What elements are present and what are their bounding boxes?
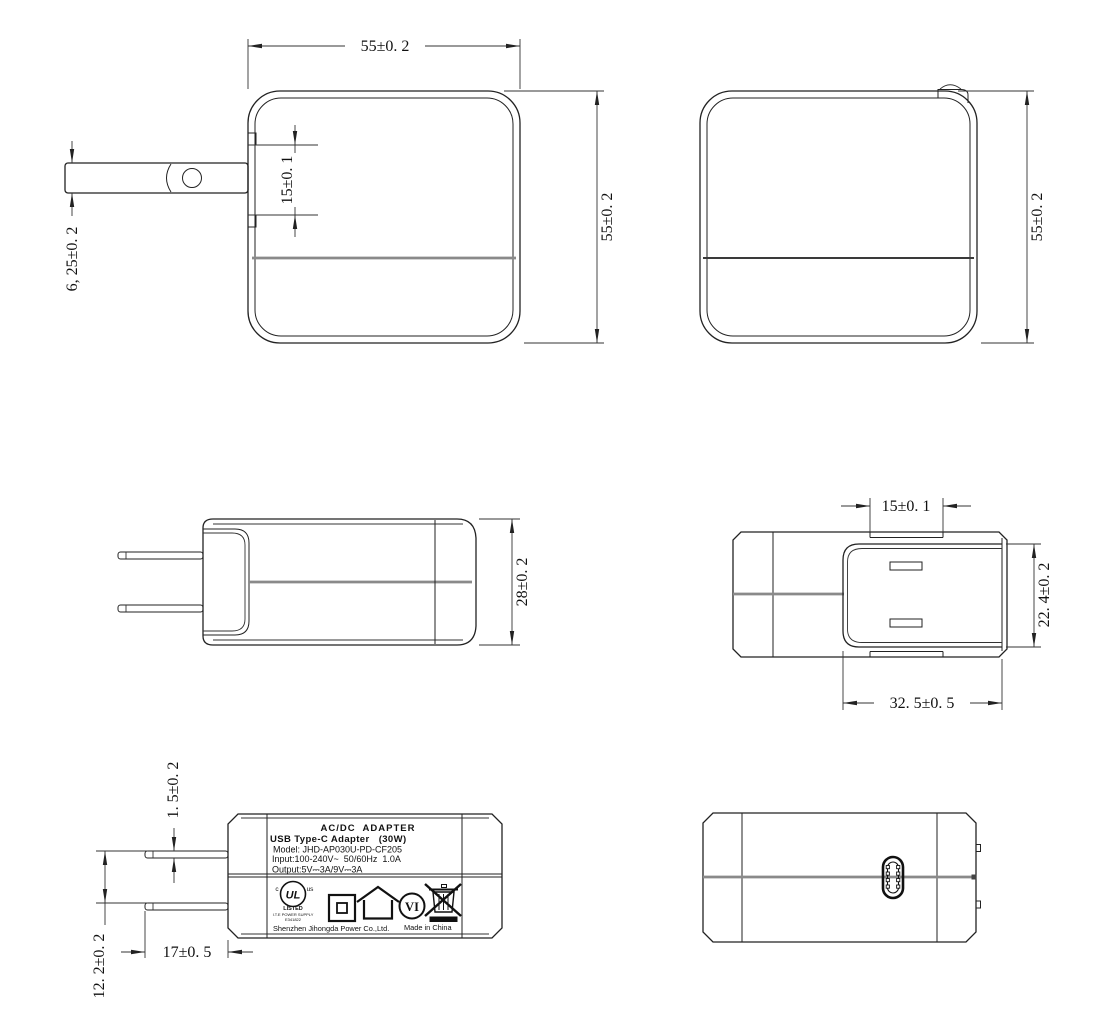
back-tab-arc: [940, 85, 961, 89]
prong-length-text: 17±0. 5: [163, 944, 212, 961]
label-input: Input:100-240V~ 50/60Hz 1.0A: [272, 854, 401, 864]
prong-hole: [183, 169, 202, 188]
indoor-use-icon: [357, 887, 399, 919]
prong-thickness-dimension: 1. 5±0. 2: [165, 762, 182, 883]
front-width-text: 55±0. 2: [361, 38, 410, 55]
ul-us-text: us: [307, 886, 315, 893]
side-notch-top: [976, 845, 981, 852]
front-view: 55±0. 2 55±0. 2 15±0. 1 6, 25±0. 2: [64, 38, 616, 343]
side-thickness-text: 28±0. 2: [514, 558, 531, 607]
top-recess-width-text: 32. 5±0. 5: [890, 695, 955, 712]
label-output: Output:5V⎓3A/9V⎓3A: [272, 865, 362, 875]
label-prong-bottom: [145, 903, 228, 910]
plug-slot-dimension: 15±0. 1: [279, 125, 296, 237]
label-prong-top: [145, 851, 228, 858]
front-body-inner-line: [255, 98, 513, 336]
bottom-view: [703, 813, 981, 942]
weee-bar: [430, 917, 458, 923]
top-recess-width-dimension: 32. 5±0. 5: [843, 651, 1002, 712]
ul-listed-icon: UL c us LISTED I.T.E POWER SUPPLY E34182…: [273, 882, 315, 923]
front-height-dimension: 55±0. 2: [504, 91, 616, 343]
ul-c-text: c: [275, 886, 279, 893]
plug-slot-text: 15±0. 1: [279, 156, 296, 205]
front-height-text: 55±0. 2: [599, 193, 616, 242]
top-prong-span-text: 15±0. 1: [882, 498, 931, 515]
class-ii-icon: [329, 895, 355, 921]
back-body-outline: [700, 91, 977, 343]
label-view: AC/DC ADAPTER USB Type-C Adapter (30W) M…: [91, 762, 502, 999]
back-height-dimension: 55±0. 2: [958, 91, 1046, 343]
folded-prong-slot-top: [890, 562, 922, 570]
label-model: Model: JHD-AP030U-PD-CF205: [273, 845, 402, 855]
efficiency-vi-icon: VI: [400, 894, 425, 919]
prong-length-dimension: 17±0. 5: [121, 911, 253, 961]
weee-bin-icon: [425, 884, 461, 922]
top-recess-depth-text: 22. 4±0. 2: [1036, 563, 1053, 628]
manufacturer-text: Shenzhen Jihongda Power Co.,Ltd.: [273, 924, 389, 933]
side-notch-bottom: [976, 901, 981, 908]
side-prong-bottom: [118, 605, 203, 612]
adapter-technical-drawing: 55±0. 2 55±0. 2 15±0. 1 6, 25±0. 2: [0, 0, 1100, 1011]
efficiency-vi-text: VI: [405, 900, 419, 914]
front-width-dimension: 55±0. 2: [248, 38, 520, 89]
front-body-outline: [248, 91, 520, 343]
top-view: 15±0. 1 22. 4±0. 2 32. 5±0. 5: [733, 498, 1053, 712]
prong-hinge-arc: [167, 164, 172, 192]
top-recess-outer: [843, 544, 1002, 647]
plug-prong-front: [65, 163, 248, 193]
top-prong-span-dimension: 15±0. 1: [841, 498, 971, 532]
side-view: 28±0. 2: [118, 519, 531, 645]
side-prong-top: [118, 552, 203, 559]
rating-label: AC/DC ADAPTER USB Type-C Adapter (30W) M…: [270, 823, 415, 875]
prong-thickness-text: 1. 5±0. 2: [165, 762, 182, 819]
prong-gap-text: 12. 2±0. 2: [91, 934, 108, 999]
prong-gap-dimension: 12. 2±0. 2: [91, 851, 148, 998]
made-in-text: Made in China: [404, 923, 453, 932]
side-thickness-dimension: 28±0. 2: [479, 519, 531, 645]
seam-end-mark: [972, 875, 977, 880]
back-height-text: 55±0. 2: [1029, 193, 1046, 242]
ul-mark-text: UL: [286, 890, 301, 902]
top-recess-depth-dimension: 22. 4±0. 2: [1006, 544, 1053, 647]
top-recess-inner: [848, 549, 1003, 643]
prong-blade-width-text: 6, 25±0. 2: [64, 227, 81, 292]
drawing-page: 55±0. 2 55±0. 2 15±0. 1 6, 25±0. 2: [0, 0, 1100, 1011]
label-subtitle: USB Type-C Adapter (30W): [270, 834, 407, 845]
label-title: AC/DC ADAPTER: [321, 823, 416, 834]
back-body-inner-line: [707, 98, 970, 336]
folded-prong-slot-bottom: [890, 619, 922, 627]
fold-recess-inner: [203, 533, 245, 631]
ul-file-text: E341822: [285, 917, 302, 922]
fold-recess-outer: [203, 529, 249, 635]
back-view: 55±0. 2: [700, 85, 1046, 343]
